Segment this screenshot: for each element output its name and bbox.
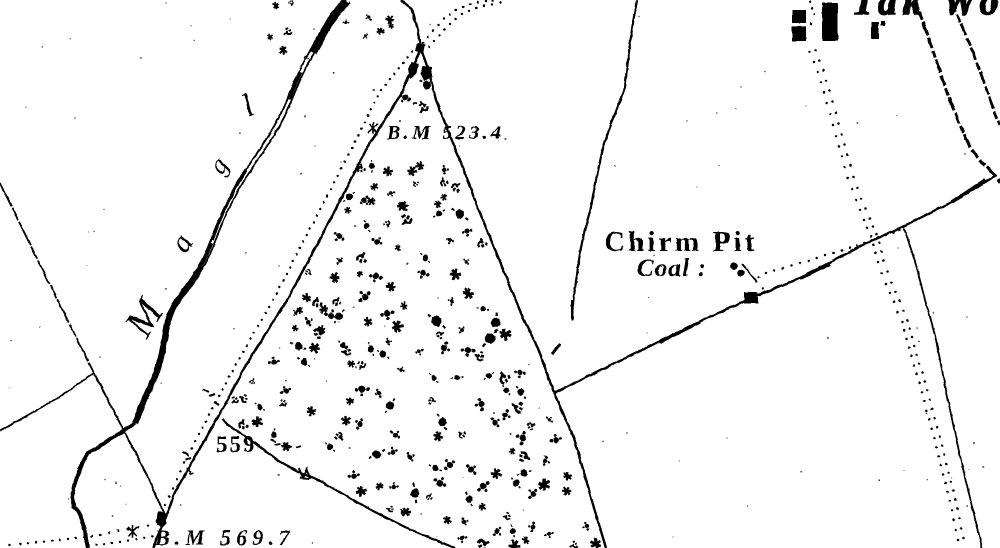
- svg-text:Tak Wor: Tak Wor: [852, 0, 1000, 23]
- svg-text:Chirm Pit: Chirm Pit: [604, 226, 758, 258]
- svg-text:Coal :: Coal :: [637, 255, 707, 282]
- svg-text:B.M 569.7: B.M 569.7: [154, 525, 295, 548]
- svg-text:559: 559: [216, 432, 257, 457]
- svg-text:B.M 523.4: B.M 523.4: [386, 122, 505, 144]
